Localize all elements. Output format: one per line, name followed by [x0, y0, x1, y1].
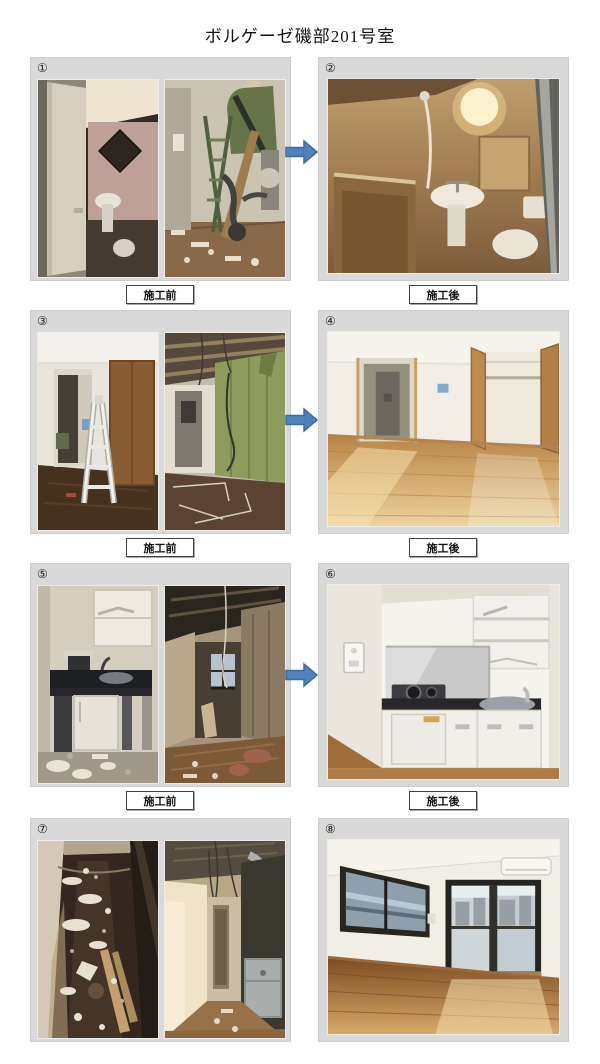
before-label-2: 施工前 — [126, 538, 194, 557]
photo-kitchen-after — [328, 585, 559, 779]
photo-bathroom-after — [328, 79, 559, 273]
report-page: ボルゲーゼ磯部201号室 ① — [0, 0, 600, 1064]
before-panel-5: ⑤ — [30, 563, 291, 787]
panel-number-1: ① — [37, 60, 48, 76]
page-title: ボルゲーゼ磯部201号室 — [0, 22, 600, 47]
after-panel-2: ② — [318, 57, 569, 281]
before-after-arrow-1 — [285, 139, 318, 165]
photo-bathroom-before — [38, 80, 158, 277]
photo-hallway-wiring — [165, 841, 285, 1038]
after-label-1: 施工後 — [409, 285, 477, 304]
before-panel-7: ⑦ — [30, 818, 291, 1042]
after-panel-6: ⑥ — [318, 563, 569, 787]
after-panel-4: ④ — [318, 310, 569, 534]
photo-kitchen-before — [38, 586, 158, 783]
photo-room-after — [328, 332, 559, 526]
photo-hallway-debris — [38, 841, 158, 1038]
after-label-2: 施工後 — [409, 538, 477, 557]
photo-bathroom-demolition — [165, 80, 285, 277]
panel-number-7: ⑦ — [37, 821, 48, 837]
panel-number-3: ③ — [37, 313, 48, 329]
before-after-arrow-2 — [285, 407, 318, 433]
photo-room-before — [38, 333, 158, 530]
panel-number-2: ② — [325, 60, 336, 76]
after-panel-8: ⑧ — [318, 818, 569, 1042]
panel-number-6: ⑥ — [325, 566, 336, 582]
before-label-3: 施工前 — [126, 791, 194, 810]
before-label-1: 施工前 — [126, 285, 194, 304]
photo-room-demolition — [165, 333, 285, 530]
photo-kitchen-demolition — [165, 586, 285, 783]
before-panel-3: ③ — [30, 310, 291, 534]
before-panel-1: ① — [30, 57, 291, 281]
panel-number-5: ⑤ — [37, 566, 48, 582]
panel-number-4: ④ — [325, 313, 336, 329]
before-after-arrow-3 — [285, 662, 318, 688]
photo-room-windows-after — [328, 840, 559, 1034]
panel-number-8: ⑧ — [325, 821, 336, 837]
after-label-3: 施工後 — [409, 791, 477, 810]
